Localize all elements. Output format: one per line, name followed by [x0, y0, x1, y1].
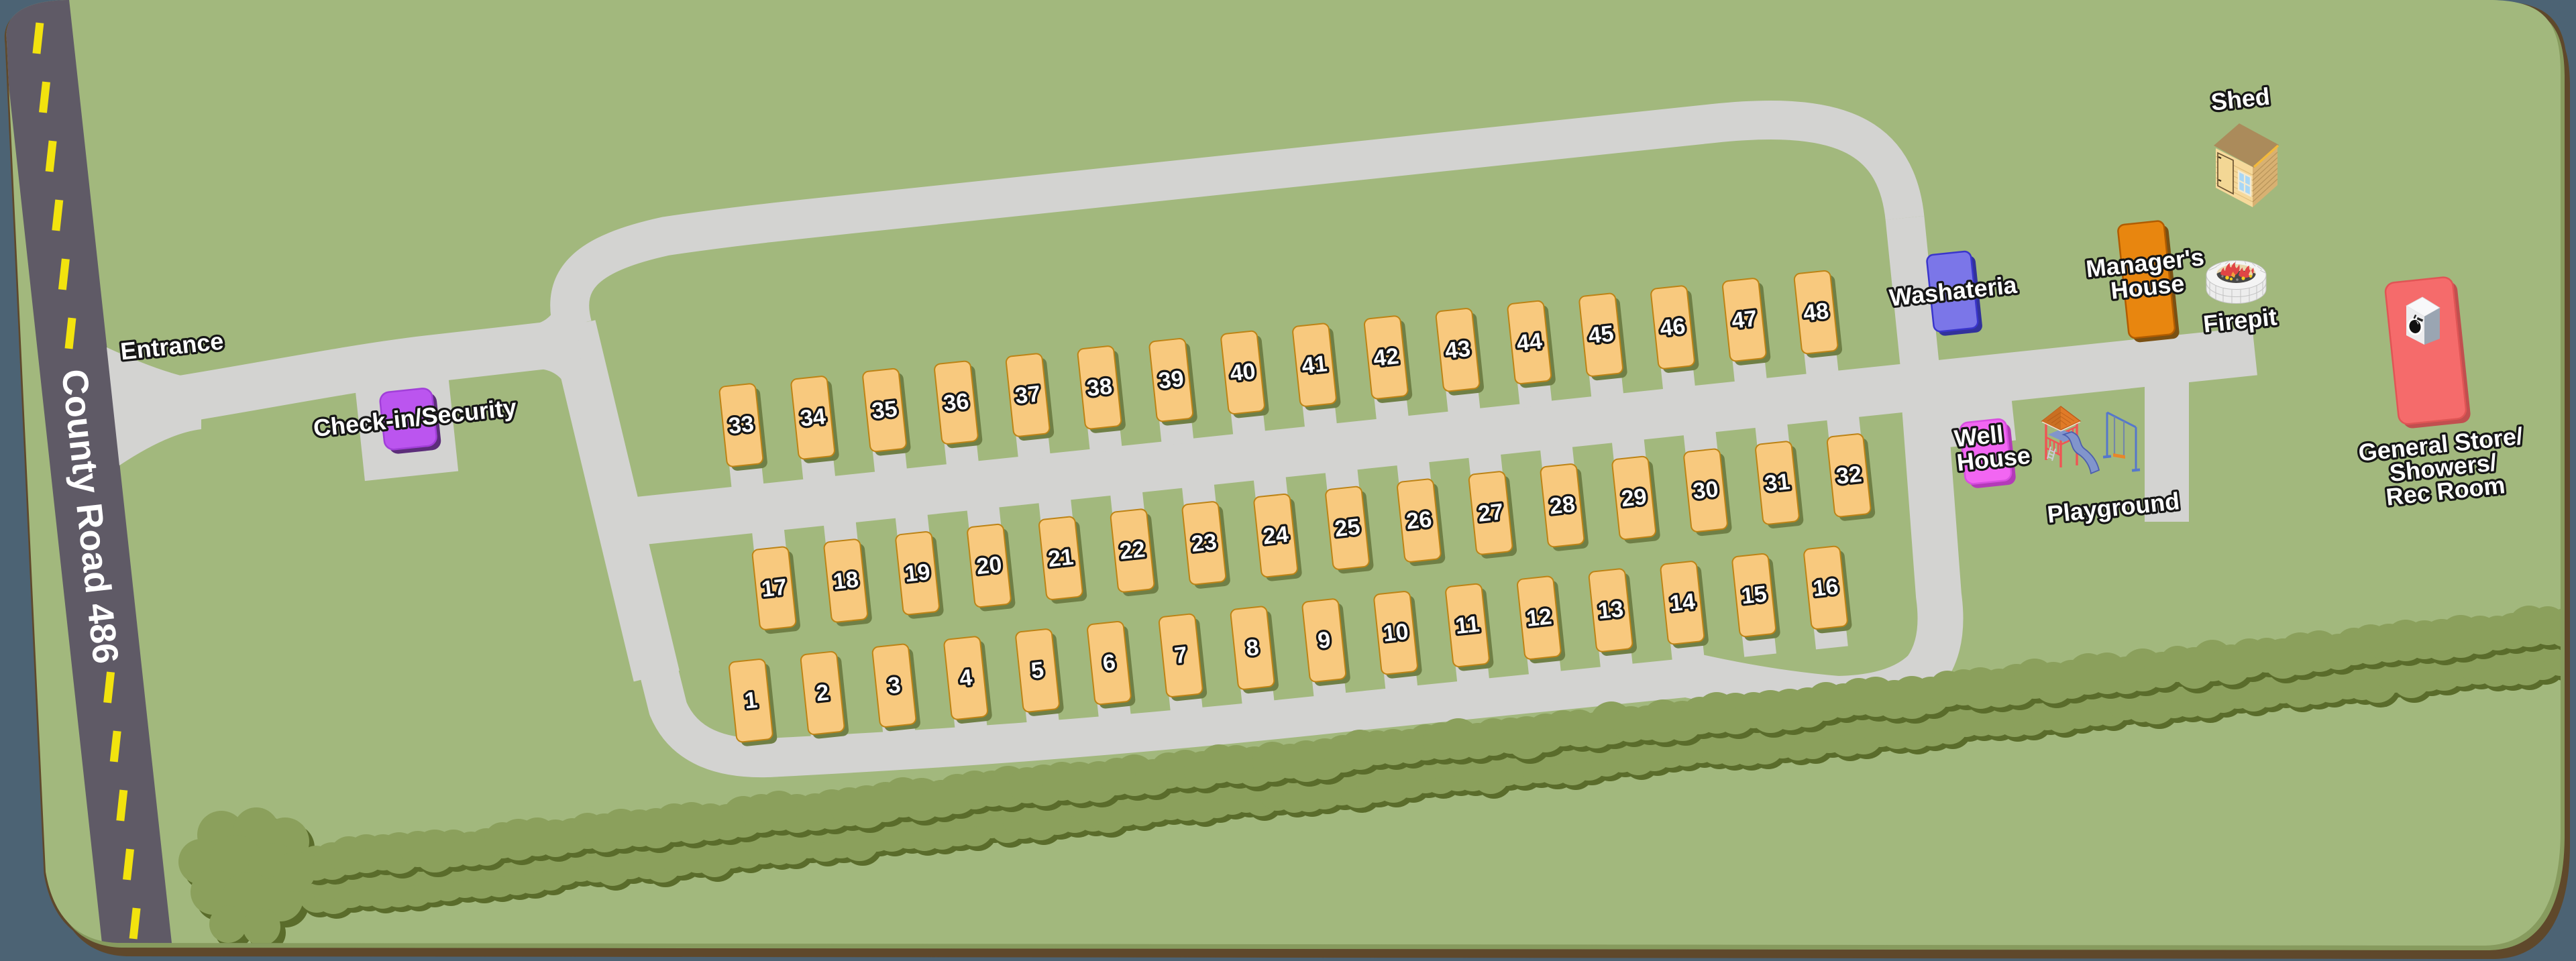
svg-text:28: 28 [1548, 492, 1576, 520]
svg-text:15: 15 [1740, 581, 1768, 610]
svg-text:19: 19 [904, 559, 932, 587]
svg-text:22: 22 [1118, 536, 1146, 565]
svg-text:42: 42 [1372, 343, 1400, 372]
svg-text:44: 44 [1515, 329, 1544, 357]
svg-text:45: 45 [1587, 321, 1615, 349]
svg-text:34: 34 [799, 404, 827, 432]
svg-text:39: 39 [1157, 366, 1185, 394]
svg-text:43: 43 [1444, 336, 1472, 364]
svg-text:16: 16 [1812, 573, 1840, 602]
svg-text:32: 32 [1835, 461, 1863, 490]
svg-text:46: 46 [1659, 313, 1687, 341]
svg-text:24: 24 [1262, 522, 1290, 550]
svg-text:27: 27 [1477, 499, 1505, 527]
svg-text:36: 36 [943, 388, 971, 416]
svg-text:21: 21 [1046, 544, 1075, 572]
svg-text:18: 18 [832, 567, 860, 595]
svg-text:17: 17 [760, 574, 788, 602]
svg-text:23: 23 [1190, 529, 1218, 557]
svg-text:9: 9 [1316, 627, 1332, 654]
svg-text:41: 41 [1301, 351, 1329, 379]
svg-text:8: 8 [1245, 634, 1260, 661]
svg-text:10: 10 [1382, 619, 1410, 647]
svg-text:26: 26 [1405, 506, 1434, 534]
svg-text:1: 1 [743, 687, 759, 714]
svg-text:13: 13 [1597, 596, 1625, 624]
svg-text:20: 20 [975, 552, 1004, 580]
svg-text:35: 35 [871, 396, 899, 425]
svg-text:38: 38 [1085, 374, 1114, 402]
svg-text:2: 2 [815, 680, 830, 707]
svg-text:3: 3 [887, 672, 902, 699]
svg-text:14: 14 [1668, 589, 1697, 617]
svg-text:37: 37 [1014, 381, 1042, 409]
svg-text:40: 40 [1229, 359, 1257, 387]
svg-text:30: 30 [1692, 476, 1720, 504]
svg-text:5: 5 [1030, 657, 1045, 684]
svg-text:33: 33 [727, 411, 755, 439]
svg-text:25: 25 [1334, 514, 1362, 542]
svg-text:12: 12 [1525, 604, 1553, 632]
svg-text:29: 29 [1620, 484, 1648, 512]
svg-text:6: 6 [1102, 650, 1117, 677]
svg-text:4: 4 [958, 665, 973, 691]
svg-text:7: 7 [1173, 642, 1189, 669]
svg-text:31: 31 [1764, 469, 1792, 497]
svg-text:48: 48 [1802, 298, 1830, 327]
svg-text:11: 11 [1454, 612, 1481, 640]
svg-text:47: 47 [1730, 306, 1758, 334]
